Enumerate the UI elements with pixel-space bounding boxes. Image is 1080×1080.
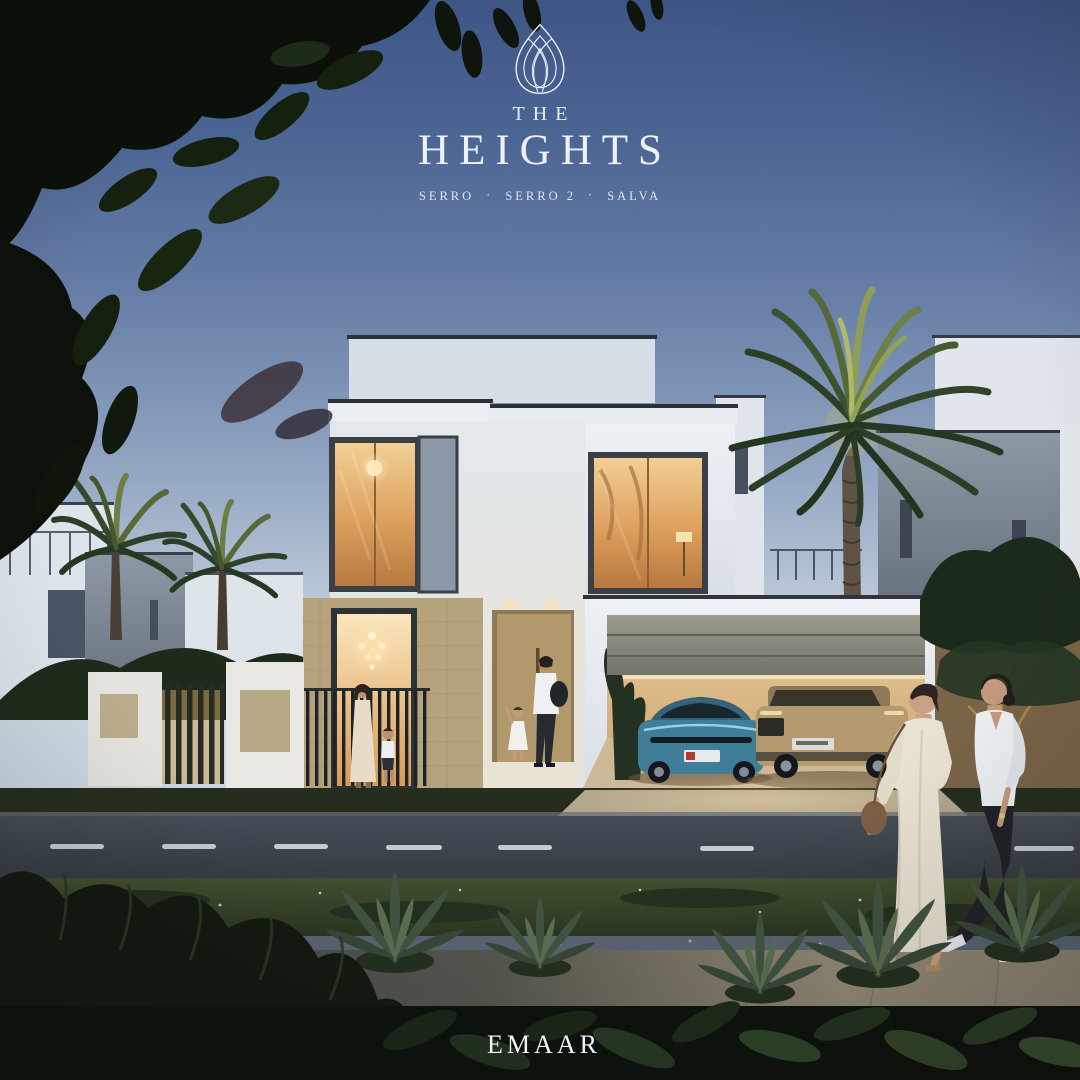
- roof-slab-left: [328, 403, 490, 423]
- brand-communities: SERRO·SERRO 2·SALVA: [0, 189, 1080, 204]
- slatted-gate: [162, 684, 224, 784]
- heights-logo-icon: [505, 20, 575, 98]
- brand-lockup: THE HEIGHTS SERRO·SERRO 2·SALVA: [0, 20, 1080, 204]
- separator-dot: ·: [588, 188, 595, 203]
- poster: THE HEIGHTS SERRO·SERRO 2·SALVA EMAAR: [0, 0, 1080, 1080]
- separator-dot: ·: [486, 188, 493, 203]
- lamp: [676, 532, 692, 542]
- upper-right-window: [588, 452, 708, 594]
- tail-light-bar: [650, 737, 752, 743]
- carried-jacket: [550, 681, 568, 707]
- wall-panel-2: [240, 690, 290, 752]
- brand-pretitle: THE: [0, 103, 1080, 126]
- boy-shirt: [381, 741, 395, 758]
- window-shutter-panel: [419, 437, 457, 592]
- upper-left-window: [329, 437, 457, 592]
- suv-grille: [758, 718, 784, 736]
- watch: [999, 813, 1005, 819]
- roof-coping-top: [347, 335, 657, 339]
- developer-logo: EMAAR: [0, 1030, 1080, 1060]
- community-serro-2: SERRO 2: [505, 189, 576, 203]
- garage-door-panel: [607, 615, 925, 675]
- roof-box: [349, 339, 655, 403]
- boy-shorts: [382, 758, 394, 770]
- community-serro: SERRO: [419, 189, 474, 203]
- handbag: [861, 801, 887, 835]
- wall-panel-1: [100, 694, 138, 738]
- community-salva: SALVA: [607, 189, 661, 203]
- brand-title: HEIGHTS: [0, 126, 1080, 175]
